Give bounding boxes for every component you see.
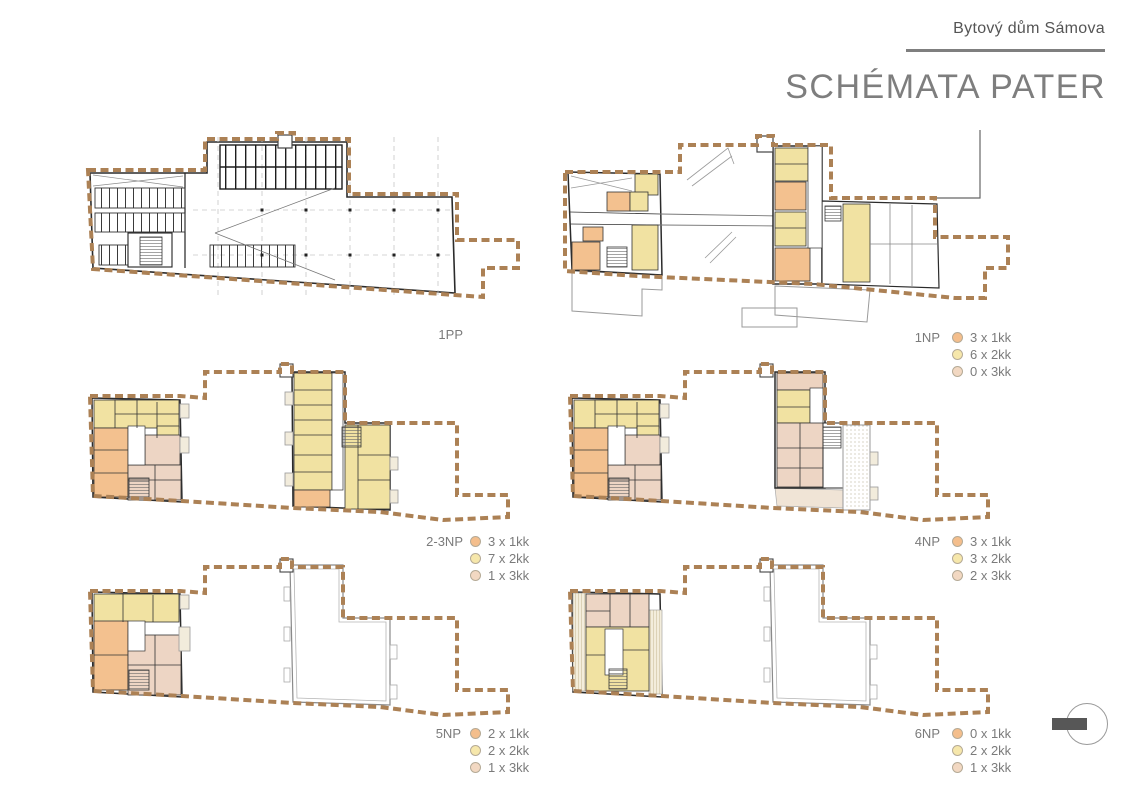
legend-dot-1kk-icon xyxy=(952,536,963,547)
legend-item: 3 x 1kk xyxy=(952,331,1011,344)
legend-item: 1 x 3kk xyxy=(952,761,1011,774)
legend-6np: 0 x 1kk 2 x 2kk 1 x 3kk xyxy=(952,727,1011,774)
legend-dot-1kk-icon xyxy=(470,536,481,547)
floor-plan-2-3np xyxy=(85,360,525,530)
floor-plan-1pp xyxy=(85,125,525,310)
legend-text: 2 x 2kk xyxy=(970,743,1011,758)
legend-text: 0 x 1kk xyxy=(970,726,1011,741)
north-arrow-bar-icon xyxy=(1052,718,1087,730)
drawing-sheet: Bytový dům Sámova SCHÉMATA PATER xyxy=(0,0,1132,800)
legend-dot-3kk-icon xyxy=(470,762,481,773)
legend-item: 2 x 1kk xyxy=(470,727,529,740)
plan-label-1pp: 1PP xyxy=(410,327,463,342)
legend-text: 2 x 2kk xyxy=(488,743,529,758)
plan-label-4np: 4NP xyxy=(895,534,940,549)
legend-text: 3 x 1kk xyxy=(970,330,1011,345)
legend-item: 1 x 3kk xyxy=(470,761,529,774)
legend-text: 3 x 1kk xyxy=(488,534,529,549)
plan-label-6np: 6NP xyxy=(895,726,940,741)
legend-item: 3 x 1kk xyxy=(952,535,1011,548)
floor-plan-4np xyxy=(565,360,1005,530)
floor-plan-1np xyxy=(560,118,1050,343)
floor-plan-6np xyxy=(565,555,1005,725)
legend-dot-1kk-icon xyxy=(470,728,481,739)
plan-label-5np: 5NP xyxy=(408,726,461,741)
legend-dot-2kk-icon xyxy=(470,745,481,756)
floor-plan-5np xyxy=(85,555,525,725)
project-name: Bytový dům Sámova xyxy=(953,20,1105,38)
legend-text: 2 x 1kk xyxy=(488,726,529,741)
legend-5np: 2 x 1kk 2 x 2kk 1 x 3kk xyxy=(470,727,529,774)
legend-text: 1 x 3kk xyxy=(970,760,1011,775)
legend-text: 3 x 1kk xyxy=(970,534,1011,549)
legend-dot-1kk-icon xyxy=(952,332,963,343)
sheet-title: SCHÉMATA PATER xyxy=(785,68,1106,107)
legend-item: 2 x 2kk xyxy=(470,744,529,757)
legend-dot-2kk-icon xyxy=(952,349,963,360)
legend-item: 3 x 1kk xyxy=(470,535,529,548)
legend-dot-3kk-icon xyxy=(952,762,963,773)
legend-dot-2kk-icon xyxy=(952,745,963,756)
legend-item: 2 x 2kk xyxy=(952,744,1011,757)
plan-label-2-3np: 2-3NP xyxy=(403,534,463,549)
legend-item: 0 x 1kk xyxy=(952,727,1011,740)
legend-dot-1kk-icon xyxy=(952,728,963,739)
title-rule xyxy=(906,49,1105,52)
plan-label-1np: 1NP xyxy=(895,330,940,345)
legend-text: 1 x 3kk xyxy=(488,760,529,775)
